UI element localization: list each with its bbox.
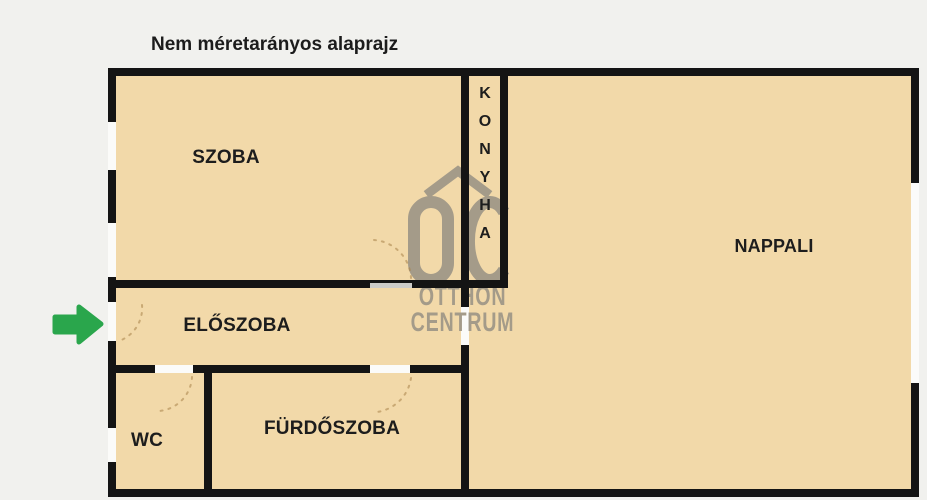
- watermark-line1: OTTHON: [402, 283, 522, 309]
- floorplan: Nem méretarányos alaprajz OTTHON CENTRUM…: [0, 0, 927, 500]
- room-label-eloszoba: ELŐSZOBA: [147, 315, 327, 337]
- room-label-wc: WC: [112, 430, 182, 452]
- wall-outer-bottom: [108, 489, 919, 497]
- room-label-szoba: SZOBA: [146, 147, 306, 169]
- window-szoba-upper: [108, 122, 116, 170]
- plan-title: Nem méretarányos alaprajz: [151, 34, 398, 56]
- watermark-line2: CENTRUM: [402, 309, 522, 335]
- room-label-furdoszoba: FÜRDŐSZOBA: [222, 418, 442, 440]
- room-label-konyha: K O N Y H A: [468, 80, 502, 248]
- window-szoba-lower: [108, 223, 116, 277]
- door-entrance-opening: [108, 302, 116, 341]
- door-furdoszoba: [370, 365, 410, 373]
- room-label-nappali: NAPPALI: [684, 236, 864, 257]
- wall-outer-top: [108, 68, 919, 76]
- door-wc: [155, 365, 193, 373]
- window-nappali: [911, 183, 919, 383]
- wall-wc-right: [204, 373, 212, 489]
- entrance-arrow-shape: [55, 307, 101, 342]
